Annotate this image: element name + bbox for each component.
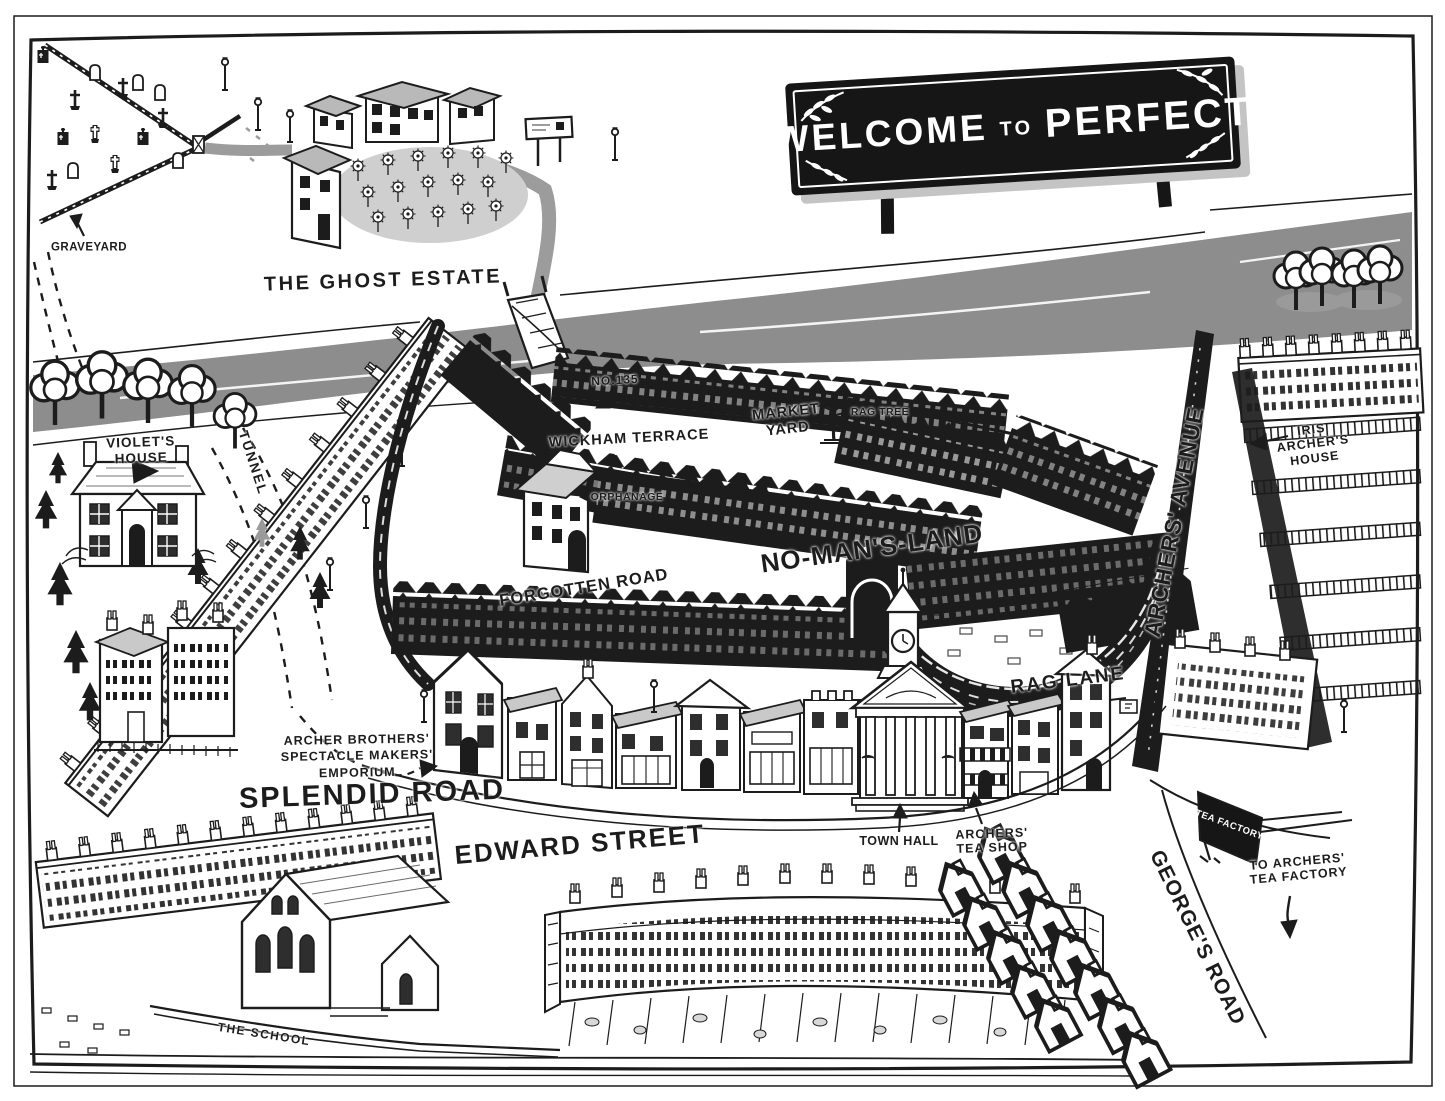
shop-building bbox=[612, 702, 682, 788]
leaf-decoration-icon bbox=[803, 154, 849, 187]
perfect-town-map: WELCOME TO PERFECT GRAVEYARD THE GHOST E… bbox=[0, 0, 1445, 1101]
shop-building bbox=[740, 700, 806, 792]
shop-building bbox=[804, 691, 858, 794]
shop-building bbox=[504, 688, 562, 780]
leaf-decoration-icon bbox=[1183, 129, 1229, 162]
tea-factory-arrow-icon bbox=[1281, 896, 1297, 938]
lamp-post-icon bbox=[327, 558, 333, 590]
graveyard-area bbox=[38, 45, 294, 222]
label-violets-house: VIOLET'S HOUSE bbox=[106, 433, 176, 466]
ghost-estate-house bbox=[284, 146, 350, 248]
label-rag-tree: RAG TREE bbox=[851, 406, 909, 418]
back-gardens bbox=[569, 993, 1065, 1046]
label-archer-brothers-emporium: ARCHER BROTHERS' SPECTACLE MAKERS' EMPOR… bbox=[280, 730, 433, 781]
leaf-decoration-icon bbox=[1173, 63, 1227, 102]
label-archers-tea-shop: ARCHERS' TEA SHOP bbox=[955, 825, 1029, 856]
sign-frame: WELCOME TO PERFECT bbox=[792, 64, 1233, 188]
label-iris-archers-house: IRIS ARCHER'S HOUSE bbox=[1274, 418, 1352, 470]
graveyard-arrow-icon bbox=[70, 214, 84, 236]
sign-leg bbox=[881, 188, 894, 234]
label-town-hall: TOWN HALL bbox=[859, 834, 938, 848]
label-market-yard: MARKET YARD bbox=[751, 401, 822, 441]
ghost-estate-house bbox=[306, 96, 360, 148]
lamp-post-icon bbox=[363, 496, 369, 528]
label-graveyard: GRAVEYARD bbox=[51, 241, 127, 254]
label-orphanage: ORPHANAGE bbox=[591, 491, 664, 503]
estate-sign bbox=[526, 117, 573, 166]
leaf-decoration-icon bbox=[795, 88, 849, 125]
label-no-135: NO.135 bbox=[591, 373, 639, 389]
shop-building bbox=[562, 659, 612, 788]
ghost-estate-house bbox=[358, 82, 448, 142]
sign-word-to: TO bbox=[999, 110, 1034, 141]
shop-building bbox=[676, 680, 748, 790]
ghost-estate-house bbox=[444, 88, 500, 144]
tea-shop-building bbox=[960, 700, 1014, 798]
